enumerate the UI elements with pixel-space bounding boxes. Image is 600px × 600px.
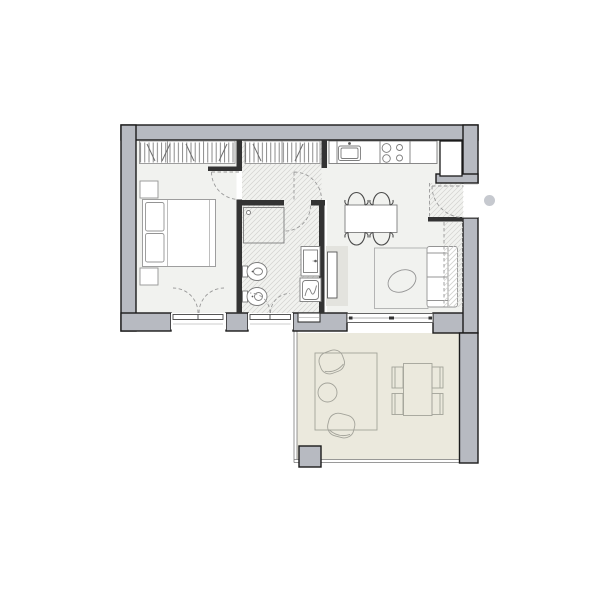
wall-corridor-kitchen [322, 140, 328, 168]
wardrobe-bedroom [140, 141, 236, 164]
entrance-landing-dot [484, 195, 495, 206]
living-sliding-door [347, 314, 433, 323]
wall-bedroom-bathroom [237, 200, 243, 314]
wall-terrace-right [460, 333, 479, 463]
bathroom-small-window [298, 313, 320, 322]
bedroom-french-window [171, 313, 226, 330]
nightstand-bottom [140, 268, 158, 285]
wall-bedroom-door-stub [208, 167, 242, 172]
wall-bathroom-top-left [242, 200, 284, 206]
double-bed [143, 200, 216, 267]
tv-screen [328, 252, 338, 298]
wardrobe-corridor [245, 141, 320, 164]
bathroom-french-window [248, 313, 293, 330]
floor-plan-drawing [0, 0, 600, 600]
wall-bottom-b [226, 313, 248, 331]
wall-right-mid [463, 218, 478, 333]
washing-machine [300, 278, 321, 302]
nightstand-top [140, 181, 158, 198]
sink-faucet-dot [348, 142, 351, 145]
wall-bottom-a [121, 313, 171, 331]
terrace-floor [297, 333, 460, 460]
wall-top [121, 125, 478, 140]
wall-left [121, 125, 136, 331]
dining-table [345, 205, 397, 233]
kitchen [329, 141, 437, 164]
wall-bedroom-corridor-upper [237, 140, 243, 167]
refrigerator-column [440, 141, 462, 176]
washbasin-vanity [301, 247, 320, 277]
overhead-zone-hatch [444, 222, 463, 307]
floor-plan-canvas [0, 0, 600, 600]
wall-entry-stub [428, 217, 464, 222]
entrance-opening [464, 184, 479, 218]
wall-corner-block [433, 313, 464, 333]
terrace-column [299, 446, 321, 467]
wall-bathroom-top-right [311, 200, 325, 206]
